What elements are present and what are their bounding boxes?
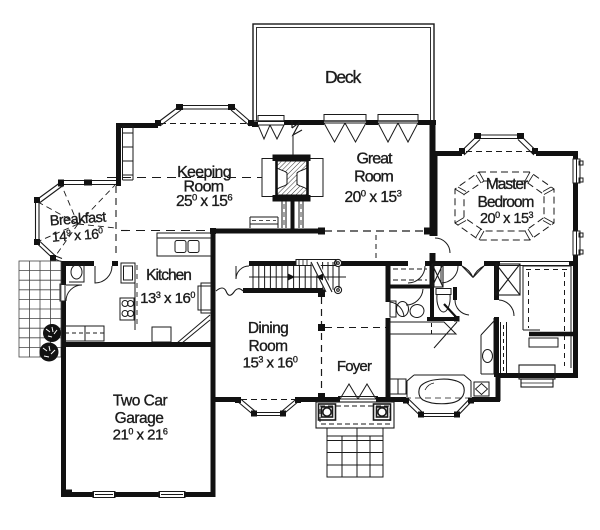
svg-text:Great: Great (356, 151, 393, 168)
svg-text:Garage: Garage (115, 410, 164, 427)
svg-text:Room: Room (249, 338, 288, 355)
svg-text:Deck: Deck (325, 67, 362, 87)
svg-text:Bedroom: Bedroom (478, 194, 534, 211)
svg-text:200 x 153: 200 x 153 (480, 210, 534, 227)
svg-text:Room: Room (354, 169, 393, 186)
svg-text:Foyer: Foyer (337, 358, 372, 375)
svg-text:Kitchen: Kitchen (146, 267, 191, 284)
svg-text:153 x 160: 153 x 160 (243, 355, 298, 372)
svg-text:133 x 160: 133 x 160 (140, 290, 195, 307)
svg-text:250 x 156: 250 x 156 (176, 193, 232, 211)
svg-text:Dining: Dining (248, 320, 288, 337)
svg-text:210 x 216: 210 x 216 (113, 427, 168, 444)
svg-text:Master: Master (486, 176, 528, 193)
svg-text:Two Car: Two Car (113, 393, 168, 410)
svg-text:200 x 153: 200 x 153 (345, 189, 402, 207)
